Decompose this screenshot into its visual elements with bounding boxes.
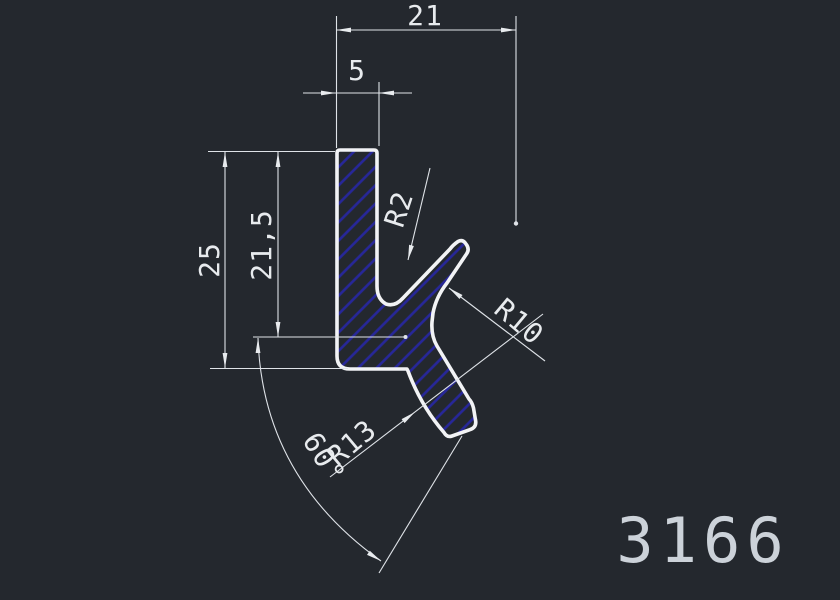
dim-5-arrow-right xyxy=(379,91,394,96)
dim-r2: R2 xyxy=(378,168,430,260)
dim-21-label: 21 xyxy=(407,0,443,32)
dim-5-label: 5 xyxy=(348,54,366,87)
dim-21-arrow-left xyxy=(336,28,351,33)
dim-r10: R10 xyxy=(449,288,550,361)
dim-21-5-arrow-top xyxy=(276,152,281,167)
ext-line-inner-dot xyxy=(404,335,408,339)
dim-25-arrow-top xyxy=(223,152,228,167)
r10-label: R10 xyxy=(488,292,550,352)
dim-21-5-label: 21,5 xyxy=(245,209,278,280)
angle-arrow-bottom xyxy=(367,551,381,561)
dim-25: 25 xyxy=(193,152,227,368)
r13-arrow xyxy=(402,412,415,423)
part-number: 3166 xyxy=(616,504,789,577)
angle-leg-line xyxy=(379,436,462,573)
dim-25-arrow-bottom xyxy=(223,353,228,368)
dim-21-ext-dot xyxy=(514,221,518,225)
dim-5: 5 xyxy=(303,54,412,146)
angle-arrow-top xyxy=(256,338,261,353)
cad-drawing-viewport: 21 5 25 21,5 xyxy=(0,0,840,600)
dim-21-arrow-right xyxy=(501,28,516,33)
drawing-canvas: 21 5 25 21,5 xyxy=(0,0,840,600)
r2-label: R2 xyxy=(378,187,420,231)
dim-21-5: 21,5 xyxy=(245,152,280,337)
dim-5-arrow-left xyxy=(321,91,336,96)
r10-arrow xyxy=(449,288,463,299)
r2-arrow xyxy=(408,245,414,260)
dim-25-label: 25 xyxy=(193,242,226,278)
dim-21-5-arrow-bottom xyxy=(276,322,281,337)
